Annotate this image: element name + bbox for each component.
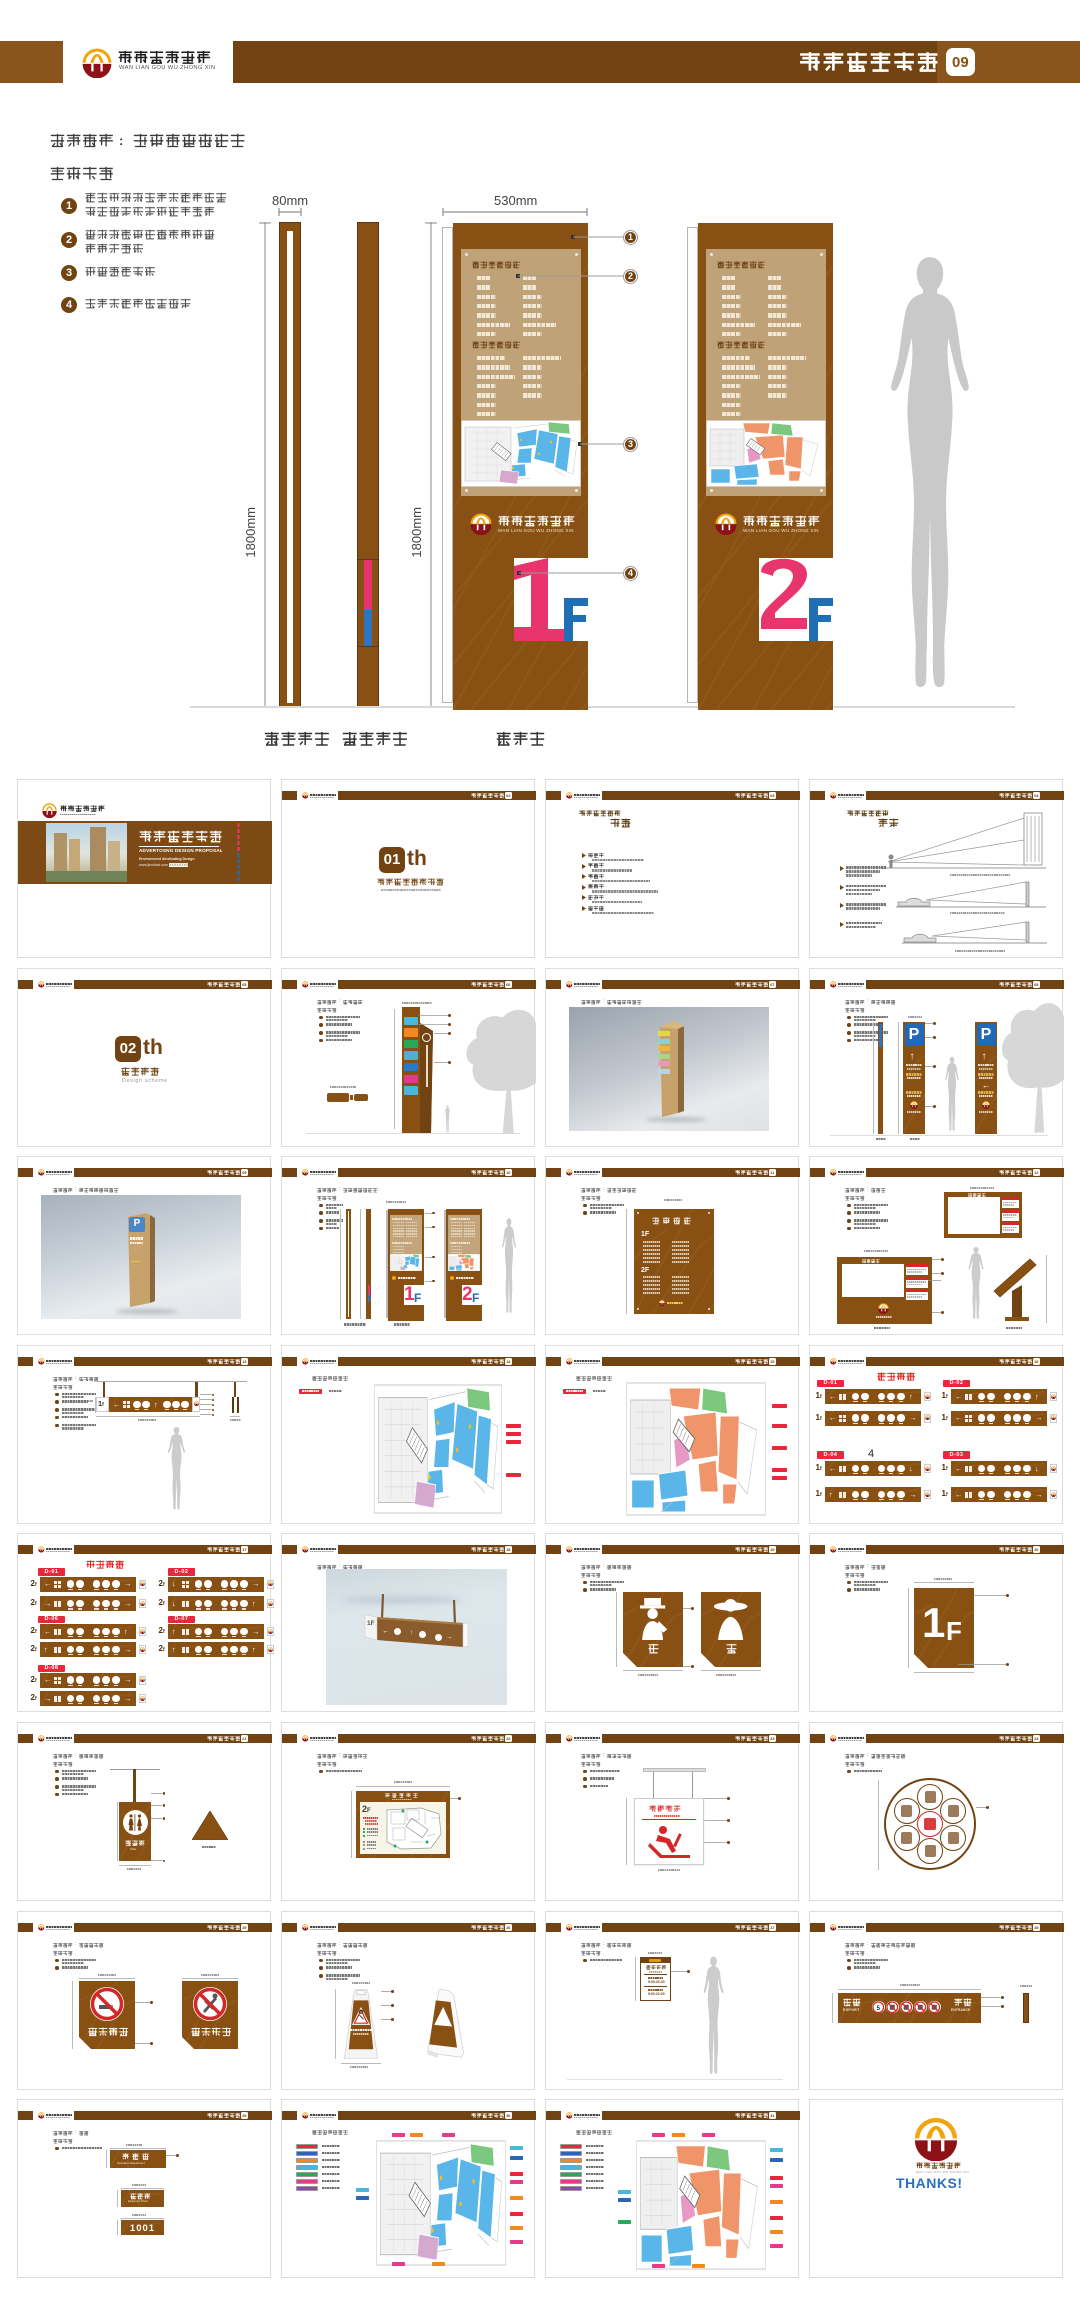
svg-text:5: 5 — [877, 2004, 881, 2011]
